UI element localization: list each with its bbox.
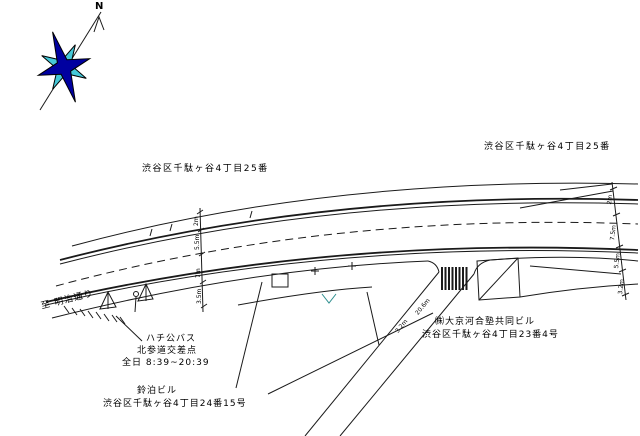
bus-stop-hours: 全日 8:39~20:39 [122, 358, 210, 369]
dimension-label: 2m [606, 194, 614, 204]
bus-stop-leader-line [116, 316, 142, 341]
side-road [268, 272, 474, 436]
curb-hatching [64, 306, 125, 324]
block-label-left: 渋谷区千駄ヶ谷4丁目25番 [142, 164, 269, 175]
dimension-label: 2m [193, 216, 200, 226]
crosswalk [442, 267, 467, 290]
site-plan-drawing: N 渋谷区千駄ヶ谷4丁目25番 渋谷区千駄ヶ谷4丁目25番 至 明治通り ハチ公… [0, 0, 640, 436]
dimension-label: 5.5m [194, 235, 201, 250]
dimension-label: 7m [195, 268, 202, 278]
compass-north-label: N [95, 1, 103, 12]
linework-layer [0, 0, 640, 436]
sidewalk-box [272, 274, 288, 287]
compass-rose-icon [19, 12, 109, 113]
building-address: 渋谷区千駄ヶ谷4丁目23番4号 [422, 330, 559, 341]
bus-stop-intersection: 北参道交差点 [137, 346, 197, 357]
building-name: ㈱大京河合塾共同ビル [435, 317, 535, 328]
corner-building-footprint [477, 258, 520, 300]
dimension-label: 3.5m [196, 289, 203, 304]
bus-stop-name: ハチ公バス [146, 334, 196, 345]
main-road [46, 183, 638, 318]
curb-cut-notch [322, 294, 336, 303]
survey-cross-icon [311, 267, 319, 275]
block-label-right: 渋谷区千駄ヶ谷4丁目25番 [484, 142, 611, 153]
survey-cross-icon [348, 262, 356, 270]
building-address: 渋谷区千駄ヶ谷4丁目24番15号 [103, 399, 247, 410]
building-name: 鈴泊ビル [137, 386, 177, 397]
